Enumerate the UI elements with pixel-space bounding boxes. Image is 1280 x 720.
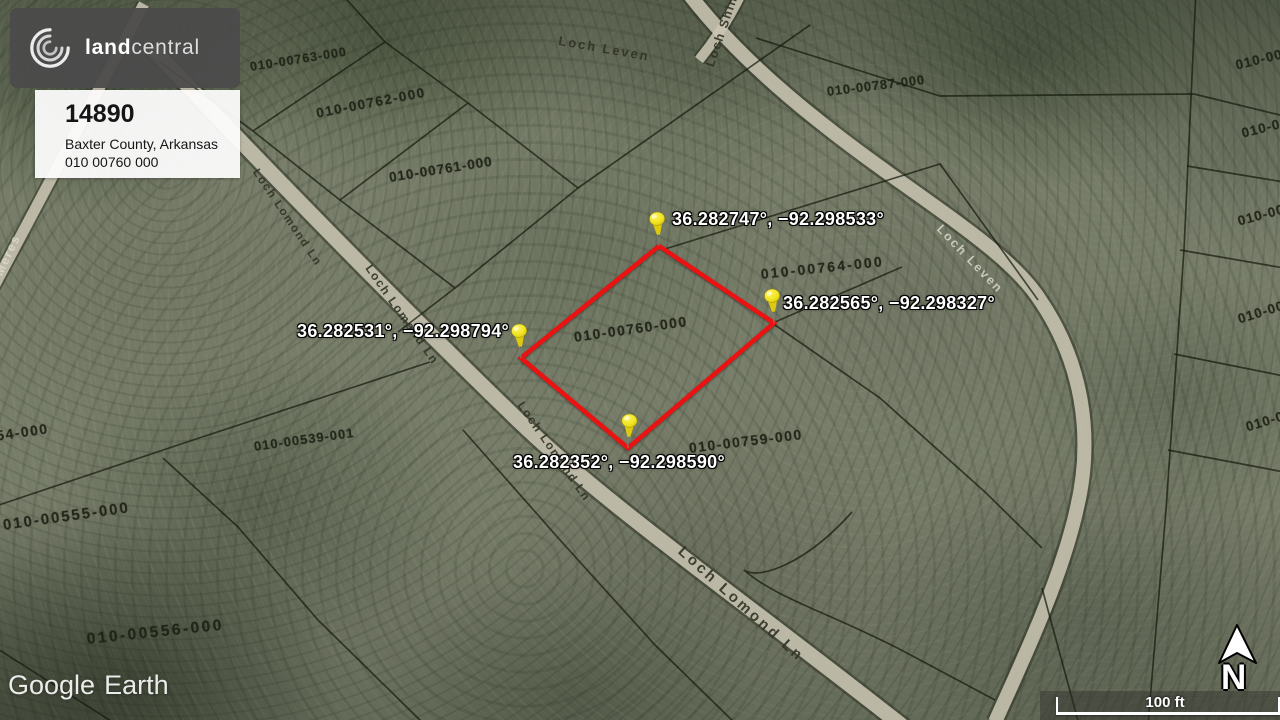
coordinate-label-west: 36.282531°, −92.298794°: [297, 321, 509, 342]
map-viewport[interactable]: 010-00763-000 010-00762-000 010-00761-00…: [0, 0, 1280, 720]
scale-bar-label: 100 ft: [1100, 694, 1230, 711]
listing-number: 14890: [65, 100, 240, 129]
north-label: N: [1221, 658, 1246, 698]
watermark-earth: Earth: [104, 670, 169, 700]
logo-card: landcentral: [10, 8, 240, 88]
landcentral-logo-icon: [27, 25, 73, 71]
watermark-google: Google: [8, 670, 95, 700]
listing-parcel-id: 010 00760 000: [65, 154, 240, 171]
coordinate-label-south: 36.282352°, −92.298590°: [513, 452, 725, 473]
listing-location: Baxter County, Arkansas: [65, 136, 240, 153]
subject-parcel-outline: [521, 246, 774, 448]
coordinate-label-east: 36.282565°, −92.298327°: [783, 293, 995, 314]
brand-word-land: land: [85, 36, 131, 59]
brand-word-central: central: [131, 36, 200, 59]
coordinate-label-north: 36.282747°, −92.298533°: [672, 209, 884, 230]
pushpin-north[interactable]: [649, 212, 667, 247]
brand-wordmark: landcentral: [85, 36, 200, 60]
google-earth-watermark: GoogleEarth: [8, 670, 169, 701]
listing-card: 14890 Baxter County, Arkansas 010 00760 …: [35, 90, 240, 178]
